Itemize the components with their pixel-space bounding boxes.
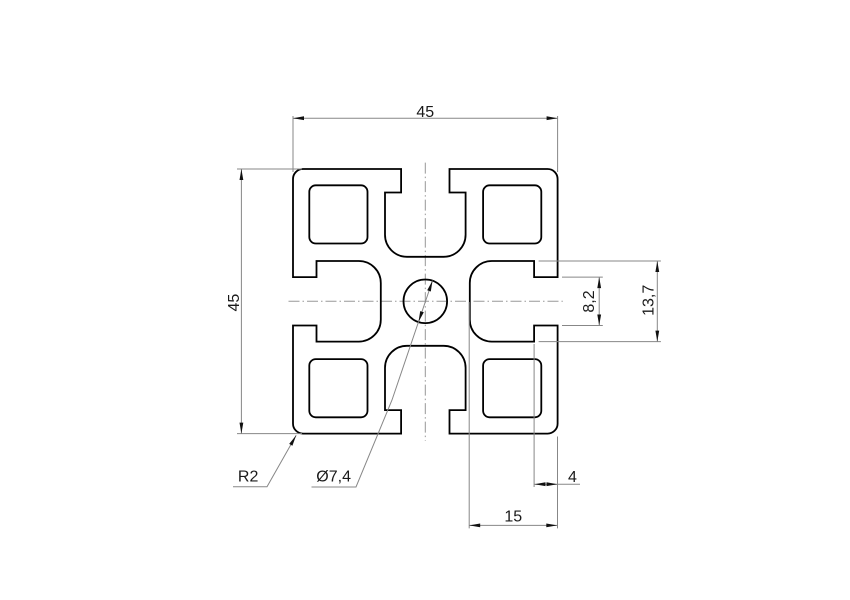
svg-text:45: 45 <box>416 104 434 121</box>
svg-text:15: 15 <box>504 508 522 525</box>
svg-text:8,2: 8,2 <box>581 290 598 312</box>
svg-text:45: 45 <box>226 294 243 312</box>
svg-text:13,7: 13,7 <box>641 285 658 316</box>
svg-text:R2: R2 <box>238 469 259 486</box>
svg-text:Ø7,4: Ø7,4 <box>316 469 351 486</box>
svg-text:4: 4 <box>568 469 577 486</box>
